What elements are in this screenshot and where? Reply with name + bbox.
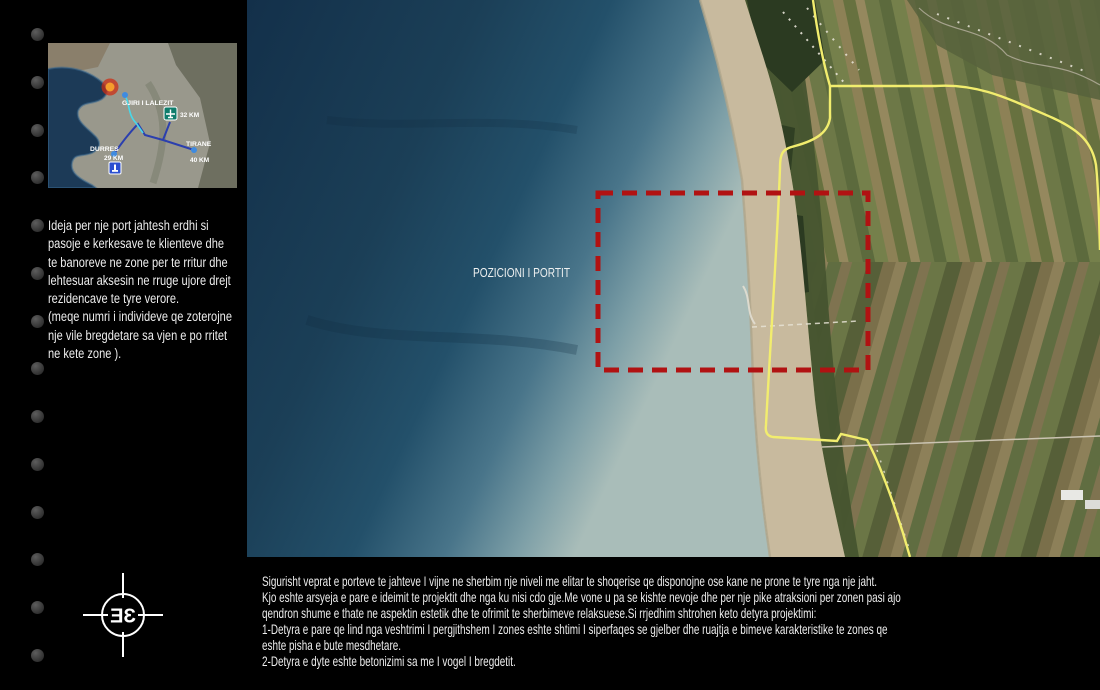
text-line: nje vile bregdetare sa vjen e po rritet [48, 327, 253, 345]
text-line: rezidencave te tyre verore. [48, 290, 253, 308]
screw-rivet [31, 124, 44, 137]
text-line: 2-Detyra e dyte eshte betonizimi sa me I… [262, 654, 1080, 670]
screw-rivet [31, 315, 44, 328]
harbour-icon [109, 162, 121, 174]
gjiri-dot [122, 92, 128, 98]
text-line: (meqe numri i individeve qe zoterojne [48, 308, 253, 326]
location-minimap: GJIRI I LALEZIT 32 KM TIRANE 40 KM DURRE… [48, 43, 237, 188]
compass-logo: ƎƐ [78, 570, 173, 665]
screw-rivet [31, 171, 44, 184]
text-line: Ideja per nje port jahtesh erdhi si [48, 217, 253, 235]
distance-label-tirane: 40 KM [190, 157, 209, 164]
satellite-canvas: POZICIONI I PORTIT [247, 0, 1100, 557]
airport-icon [164, 107, 177, 120]
text-line: eshte pisha e bute mesdhetare. [262, 638, 1080, 654]
intro-paragraph: Ideja per nje port jahtesh erdhi si paso… [48, 217, 253, 363]
screw-rivet [31, 219, 44, 232]
description-paragraph: Sigurisht veprat e porteve te jahteve I … [262, 574, 1080, 670]
screw-rivet [31, 458, 44, 471]
screw-rivet [31, 267, 44, 280]
place-label-durres: DURRES [90, 146, 119, 153]
screw-rivet [31, 76, 44, 89]
text-line: lehtesuar aksesin ne rruge ujore drejt [48, 272, 253, 290]
screw-rivet [31, 28, 44, 41]
port-site-marker [106, 83, 115, 92]
screw-rivet [31, 506, 44, 519]
text-line: Kjo eshte arsyeja e pare e ideimit te pr… [262, 590, 1080, 606]
text-line: ne kete zone ). [48, 345, 253, 363]
port-site-label: POZICIONI I PORTIT [473, 265, 570, 280]
satellite-map: POZICIONI I PORTIT [247, 0, 1100, 557]
text-line: te banoreve ne zone per te rritur dhe [48, 254, 253, 272]
place-label-gjiri: GJIRI I LALEZIT [122, 100, 174, 107]
greenhouse [1061, 490, 1083, 500]
text-line: Sigurisht veprat e porteve te jahteve I … [262, 574, 1080, 590]
text-line: 1-Detyra e pare qe lind nga veshtrimi I … [262, 622, 1080, 638]
screw-column [31, 28, 44, 662]
screw-rivet [31, 410, 44, 423]
distance-label-durres: 29 KM [104, 155, 123, 162]
screw-rivet [31, 362, 44, 375]
location-minimap-canvas: GJIRI I LALEZIT 32 KM TIRANE 40 KM DURRE… [48, 43, 237, 188]
logo-monogram: ƎƐ [110, 606, 136, 628]
screw-rivet [31, 553, 44, 566]
greenhouse [1085, 500, 1100, 509]
place-label-tirane: TIRANE [186, 141, 212, 148]
text-line: pasoje e kerkesave te klienteve dhe [48, 235, 253, 253]
compass-canvas: ƎƐ [78, 570, 173, 665]
screw-rivet [31, 649, 44, 662]
text-line: qendron shume e thate ne aspektin esteti… [262, 606, 1080, 622]
distance-label-airport: 32 KM [180, 112, 199, 119]
screw-rivet [31, 601, 44, 614]
